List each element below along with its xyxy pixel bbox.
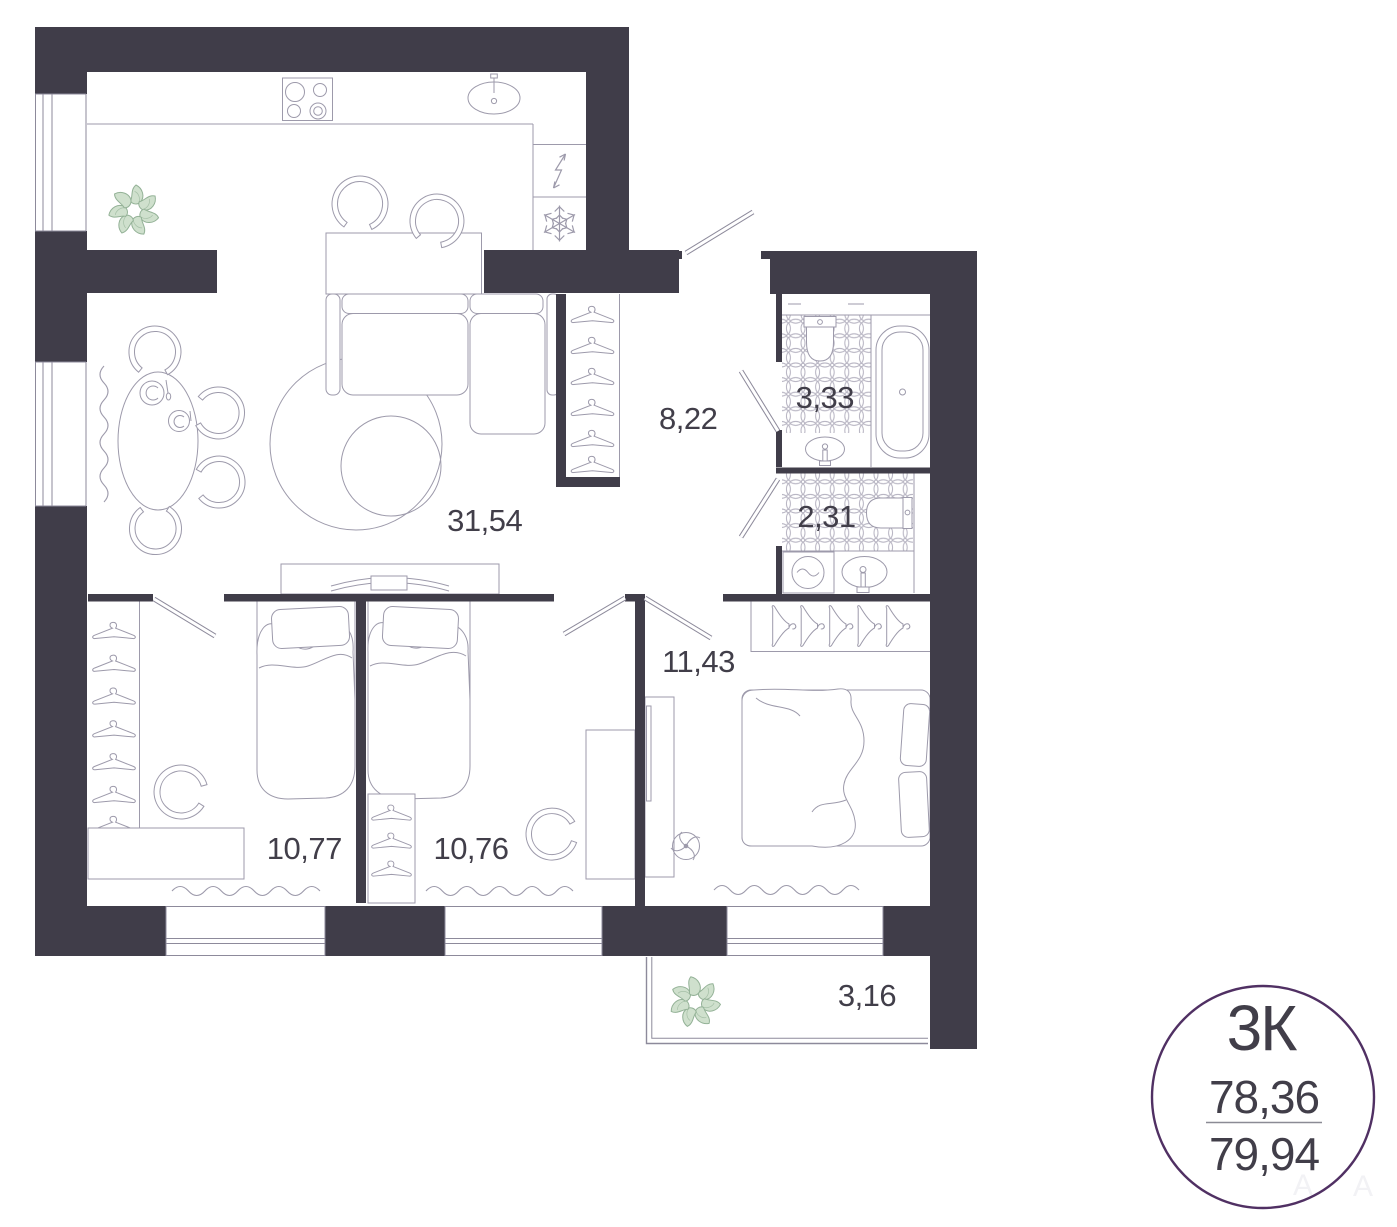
svg-text:10,77: 10,77 <box>267 831 342 866</box>
svg-text:3,33: 3,33 <box>796 380 854 415</box>
svg-text:78,36: 78,36 <box>1209 1071 1319 1123</box>
svg-text:11,43: 11,43 <box>662 644 735 679</box>
svg-text:А: А <box>1353 1170 1373 1203</box>
svg-text:10,76: 10,76 <box>433 831 508 866</box>
svg-text:3,16: 3,16 <box>838 978 896 1013</box>
svg-text:8,22: 8,22 <box>659 401 717 436</box>
svg-text:2,31: 2,31 <box>797 499 855 534</box>
svg-text:79,94: 79,94 <box>1209 1128 1320 1180</box>
svg-text:31,54: 31,54 <box>447 503 522 538</box>
svg-text:3К: 3К <box>1227 992 1298 1064</box>
